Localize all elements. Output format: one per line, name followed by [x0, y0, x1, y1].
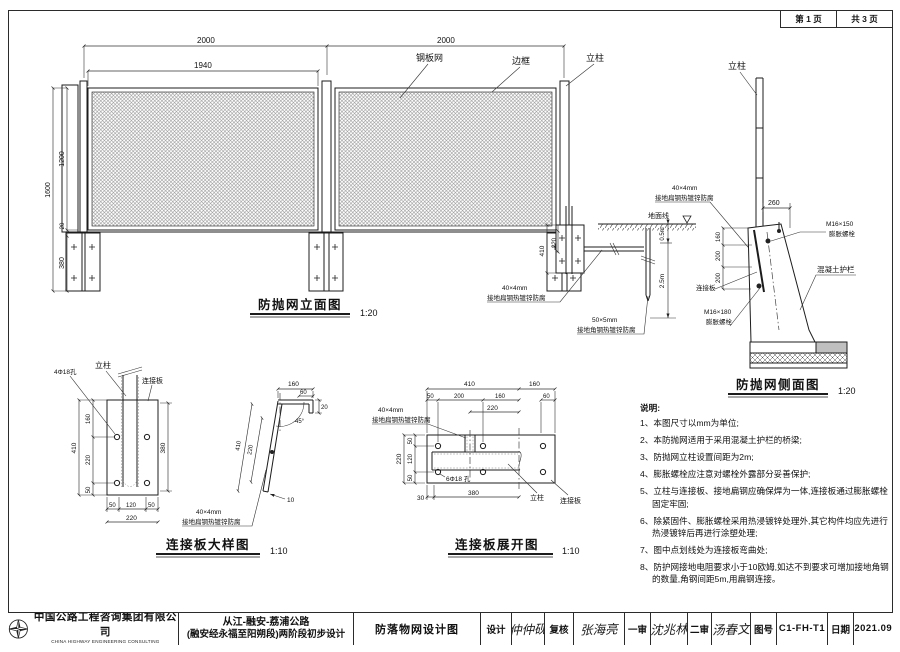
note-item: 8、防护网接地电阻要求小于10欧姆,如达不到要求可增加接地角钢的数量,角钢间距5… — [640, 561, 893, 586]
uf-l220: 220 — [396, 453, 403, 464]
left-post — [80, 81, 87, 232]
note-item: 2、本防抛网适用于采用混凝土护栏的桥梁; — [640, 434, 893, 446]
uf-l50b: 50 — [408, 474, 414, 481]
uf-200: 200 — [454, 394, 465, 400]
review2-label-cell: 二审 — [687, 613, 711, 645]
note-item: 4、膨胀螺栓应注意对螺栓外露部分妥善保护; — [640, 468, 893, 480]
unfold-title: 连接板展开图 — [455, 537, 539, 552]
review1-signature: 沈兆林 — [650, 619, 687, 639]
pd-p60: 60 — [300, 390, 307, 396]
label-barrier: 混凝土护栏 — [817, 264, 855, 274]
note-item: 3、防抛网立柱设置间距为2m; — [640, 451, 893, 463]
pd-flat-name: 接地扁钢热镀锌防腐 — [182, 517, 241, 526]
dim-plate-height: 380 — [59, 257, 66, 269]
check-label: 复核 — [549, 622, 568, 636]
pd-p410: 410 — [235, 440, 243, 451]
uf-b30: 30 — [417, 495, 425, 502]
barrier-base-block — [816, 342, 847, 353]
notes-block: 说明: 1、本图尺寸以mm为单位; 2、本防抛网适用于采用混凝土护栏的桥梁; 3… — [640, 402, 893, 590]
pd-dim-220: 220 — [86, 454, 92, 465]
mesh-panel-1 — [92, 92, 314, 226]
date-cell: 2021.09 — [853, 613, 893, 645]
side-label-post: 立柱 — [728, 60, 746, 71]
uf-label-holes: 6Φ18 孔 — [446, 475, 471, 483]
dim-gap: 20 — [60, 222, 66, 229]
drawing-no-label: 图号 — [754, 622, 773, 636]
dim-depth-25: 2.5m — [659, 274, 666, 288]
design-label-cell: 设计 — [480, 613, 511, 645]
dim-anchor-410: 410 — [539, 245, 546, 256]
check-signature-cell: 张海亮 — [573, 613, 624, 645]
label-post: 立柱 — [586, 52, 604, 63]
company-name-en: CHINA HIGHWAY ENGINEERING CONSULTING COR… — [33, 639, 178, 645]
drawing-title: 防落物网设计图 — [375, 621, 459, 637]
side-flat-spec: 40×4mm — [672, 185, 697, 192]
side-dim-200a: 200 — [716, 250, 722, 261]
uf-60: 60 — [543, 394, 550, 400]
dim-total-height: 1600 — [45, 182, 52, 198]
break-symbol — [610, 243, 619, 255]
plate-unfold-view: 410 160 50 200 160 60 220 220 50 120 50 — [372, 381, 581, 557]
side-dim-160: 160 — [716, 231, 722, 242]
label-ground-line: 地面线 — [648, 211, 669, 220]
side-label-plate: 连接板 — [696, 283, 716, 292]
note-item: 1、本图尺寸以mm为单位; — [640, 417, 893, 429]
note-item: 6、除紧固件、膨胀螺栓采用热浸镀锌处理外,其它构件均应先进行热浸镀锌后再进行涂塑… — [640, 515, 893, 540]
pd-dim-50: 50 — [86, 486, 92, 493]
pd-angle: 45° — [295, 419, 305, 425]
review2-signature: 汤春文 — [712, 619, 750, 639]
mesh-panel-2 — [339, 92, 552, 226]
dim-span2: 2000 — [437, 36, 455, 45]
dim-span1: 2000 — [197, 36, 215, 45]
base-plate-middle — [309, 233, 343, 291]
drawing-title-cell: 防落物网设计图 — [353, 613, 480, 645]
flat-steel-name: 接地扁钢热镀锌防腐 — [487, 293, 546, 302]
elevation-title: 防抛网立面图 — [258, 297, 342, 312]
date-label-cell: 日期 — [827, 613, 853, 645]
check-signature: 张海亮 — [580, 619, 618, 639]
pd-b50a: 50 — [109, 503, 116, 509]
plate-detail-view: 410 160 220 50 380 50 120 50 220 立柱 连接板 … — [54, 360, 328, 557]
uf-160b: 160 — [495, 394, 506, 400]
project-cell: 从江-融安-荔浦公路 (融安经永福至阳朔段)两阶段初步设计 — [178, 613, 353, 645]
unfold-scale: 1:10 — [562, 546, 580, 556]
label-frame: 边框 — [512, 55, 530, 66]
project-line2: (融安经永福至阳朔段)两阶段初步设计 — [187, 629, 345, 641]
note-item: 5、立柱与连接板、接地扁钢应确保焊为一体,连接板通过膨胀螺栓固定牢固; — [640, 485, 893, 510]
uf-l120: 120 — [408, 453, 414, 464]
label-steel-mesh: 钢板网 — [416, 52, 443, 63]
drawing-no-cell: C1-FH-T1 — [776, 613, 827, 645]
pd-dim-380: 380 — [160, 442, 167, 453]
company-logo-icon — [8, 618, 29, 640]
bolt-top-name: 膨胀螺栓 — [829, 229, 856, 238]
uf-50: 50 — [427, 394, 434, 400]
notes-heading: 说明: — [640, 402, 893, 414]
design-label: 设计 — [486, 622, 505, 636]
pd-b50b: 50 — [148, 503, 155, 509]
base-plate-left — [66, 233, 100, 291]
angle-steel-spec: 50×5mm — [592, 317, 617, 324]
middle-post — [322, 81, 331, 232]
review1-label-cell: 一审 — [624, 613, 650, 645]
pd-label-plate: 连接板 — [142, 376, 163, 385]
elevation-scale: 1:20 — [360, 308, 378, 318]
date-value: 2021.09 — [854, 623, 892, 634]
angle-steel-name: 接地角钢热镀锌防腐 — [577, 325, 636, 334]
note-item: 7、图中点划线处为连接板弯曲处; — [640, 544, 893, 556]
pd-p220: 220 — [247, 444, 255, 455]
plate-profile-top — [278, 400, 313, 413]
drawing-sheet: 第 1 页 共 3 页 — [0, 0, 900, 652]
uf-160: 160 — [529, 381, 540, 388]
dim-depth-05: 0.5m — [660, 227, 666, 240]
title-block: 中国公路工程咨询集团有限公司 CHINA HIGHWAY ENGINEERING… — [8, 612, 893, 645]
pd-dim-410: 410 — [71, 442, 78, 453]
right-post — [560, 81, 569, 232]
pd-label-post: 立柱 — [95, 360, 111, 370]
dim-mesh-width: 1940 — [194, 61, 212, 70]
drawing-no: C1-FH-T1 — [779, 623, 825, 634]
barrier-base-hatch — [750, 353, 847, 363]
check-label-cell: 复核 — [544, 613, 573, 645]
pd-p10: 10 — [287, 497, 295, 504]
concrete-barrier — [748, 224, 815, 342]
pd-p160: 160 — [288, 381, 299, 388]
uf-label-plate: 连接板 — [560, 496, 581, 505]
side-scale: 1:20 — [838, 386, 856, 396]
design-signature-cell: 仲仲砚 — [511, 613, 544, 645]
date-label: 日期 — [831, 622, 850, 636]
design-signature: 仲仲砚 — [511, 619, 544, 639]
uf-b380: 380 — [468, 490, 479, 497]
pd-p20: 20 — [321, 405, 328, 411]
side-dim-200b: 200 — [716, 272, 722, 283]
plate-detail-scale: 1:10 — [270, 546, 288, 556]
weld-dot — [270, 450, 274, 454]
pd-b120: 120 — [126, 503, 137, 509]
buried-angle-steel — [646, 228, 650, 301]
project-line1: 从江-融安-荔浦公路 — [223, 617, 310, 630]
review1-signature-cell: 沈兆林 — [650, 613, 687, 645]
uf-l50a: 50 — [408, 437, 414, 444]
pd-label-holes: 4Φ18孔 — [54, 368, 77, 376]
dim-mesh-height: 1200 — [59, 151, 66, 167]
side-flat-name: 接地扁钢热镀锌防腐 — [655, 193, 714, 202]
side-title: 防抛网侧面图 — [736, 377, 820, 392]
uf-220: 220 — [487, 405, 498, 412]
plate-detail-title: 连接板大样图 — [166, 537, 250, 552]
plate-profile-leg — [263, 401, 282, 492]
dim-260: 260 — [768, 200, 780, 207]
plate-front — [107, 400, 158, 495]
bolt-top-spec: M16×150 — [826, 221, 854, 228]
dim-anchor-220: 220 — [552, 237, 558, 248]
uf-410: 410 — [464, 381, 475, 388]
pd-flat-spec: 40×4mm — [196, 509, 221, 516]
uf-flat-name: 接地扁钢热镀锌防腐 — [372, 415, 431, 424]
elevation-view: 2000 2000 1940 1600 1200 20 380 钢板网 边框 立… — [45, 36, 604, 318]
review2-signature-cell: 汤春文 — [711, 613, 750, 645]
uf-label-post: 立柱 — [530, 493, 544, 502]
anchor-plate — [556, 225, 584, 273]
uf-flat-spec: 40×4mm — [378, 407, 403, 414]
company-cell: 中国公路工程咨询集团有限公司 CHINA HIGHWAY ENGINEERING… — [8, 613, 178, 645]
review2-label: 二审 — [690, 622, 709, 636]
flat-steel-spec: 40×4mm — [502, 285, 527, 292]
bolt-bot-spec: M16×180 — [704, 309, 732, 316]
pd-dim-160: 160 — [86, 413, 92, 424]
level-marker-icon — [683, 216, 691, 223]
drawing-no-label-cell: 图号 — [750, 613, 776, 645]
bolt-bot-name: 膨胀螺栓 — [706, 317, 733, 326]
pd-b220: 220 — [126, 515, 137, 522]
review1-label: 一审 — [628, 622, 647, 636]
company-name: 中国公路工程咨询集团有限公司 — [33, 613, 178, 639]
ground-hatch — [598, 225, 696, 231]
